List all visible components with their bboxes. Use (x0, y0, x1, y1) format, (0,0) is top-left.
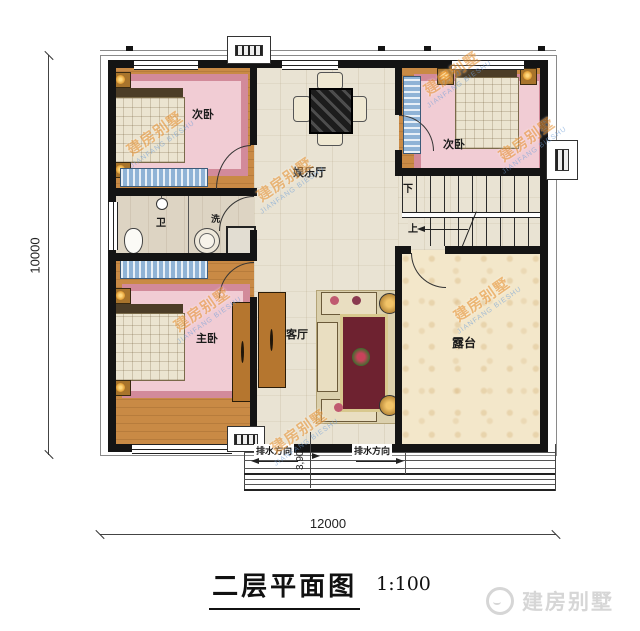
eave-line-outer (100, 50, 556, 51)
wardrobe (258, 292, 286, 388)
wall-right (540, 60, 548, 452)
label-living-room: 客厅 (286, 326, 308, 342)
lamp-icon (116, 75, 125, 84)
nightstand (437, 68, 454, 85)
dim-porch-arrow-icon (312, 453, 320, 459)
wardrobe-handle (241, 341, 244, 363)
wall-hall-bedroomTR (395, 60, 402, 115)
dim-bottom-line (100, 534, 556, 535)
window (108, 202, 118, 250)
nightstand (520, 68, 537, 85)
stair-arrow-line (424, 229, 468, 230)
dim-left-text: 10000 (28, 237, 43, 273)
window (282, 60, 338, 70)
wall-bedroomTL-bottom (108, 188, 257, 196)
roof-strip-heavy (244, 473, 556, 475)
bay-pane-icon (555, 149, 569, 171)
dim-porch-text: 3,900 (295, 445, 306, 470)
wall-bedroomTL-right (250, 60, 257, 145)
bed-headboard (113, 304, 183, 313)
lamp-icon (440, 71, 449, 80)
sofa-left (317, 322, 338, 392)
label-bedroom-top-left: 次卧 (192, 106, 214, 122)
roof-strip-line (244, 468, 556, 469)
label-bedroom-top-right: 次卧 (443, 136, 465, 152)
lamp-icon (116, 291, 125, 300)
wardrobe-handle (270, 329, 273, 351)
eave-marker (538, 46, 545, 51)
lamp-icon (523, 71, 532, 80)
label-bedroom-master: 主卧 (196, 330, 218, 346)
dim-left-line (48, 55, 49, 455)
basin-inner (199, 233, 215, 249)
wall-stairs-bottom-left (395, 246, 411, 254)
label-stairs-down: 下 (403, 180, 413, 195)
drain-arrow-left-icon (251, 458, 259, 464)
floor-plan-canvas: 次卧 次卧 主卧 娱乐厅 客厅 卫 洗 露台 下 上 排水方向 排水方向 3,9… (0, 0, 640, 631)
flower-decor-icon (352, 348, 370, 366)
label-terrace: 露台 (452, 334, 476, 351)
bath-partition (188, 196, 189, 253)
pillow-icon (330, 296, 339, 305)
page-title: 二层平面图 (209, 566, 360, 610)
roof-strip-heavy (244, 489, 556, 491)
wall-bedroomTR-bottom (395, 168, 548, 176)
bay-box-top (227, 36, 271, 64)
brand-logo: 建房别墅 (486, 586, 614, 616)
window (134, 60, 198, 70)
wall-bath-bottom (108, 253, 257, 261)
label-toilet: 卫 (156, 214, 166, 229)
roof-strip-right-edge (555, 444, 556, 491)
dim-porch-line (310, 432, 311, 488)
wall-terrace-left (395, 254, 402, 452)
eave-marker (378, 46, 385, 51)
stair-flight-upper (402, 172, 544, 212)
lamp-icon (116, 383, 125, 392)
dim-bottom-text: 12000 (100, 516, 556, 531)
label-laundry: 洗 (211, 212, 220, 225)
dim-tick (44, 51, 53, 60)
stair-arrow-head-icon (417, 226, 425, 232)
pillow-icon (334, 403, 343, 412)
drawing-scale: 1:100 (376, 573, 431, 595)
label-entertainment-hall: 娱乐厅 (293, 164, 326, 180)
game-table (309, 88, 353, 134)
roof-strip-line (244, 479, 556, 480)
bed-top-left (113, 97, 185, 163)
drain-arrow-left-line (258, 461, 298, 462)
toilet-icon (124, 228, 143, 254)
brand-logo-icon (486, 587, 514, 615)
label-drainage-right: 排水方向 (352, 444, 392, 457)
eave-marker (126, 46, 133, 51)
wall-stairs-bottom-right (445, 246, 548, 254)
window (132, 444, 232, 454)
dim-tick (44, 450, 53, 459)
window-bench (120, 260, 208, 279)
window-bench (120, 168, 208, 187)
bed-headboard (113, 88, 183, 97)
eave-marker (424, 46, 431, 51)
sofa-top (321, 292, 377, 315)
window (452, 60, 524, 70)
bay-pane-icon (235, 45, 263, 56)
stair-flight-lower (430, 216, 544, 246)
shower-icon (156, 198, 168, 210)
drain-arrow-right-line (356, 461, 396, 462)
label-drainage-left: 排水方向 (254, 444, 294, 457)
bed-master (113, 313, 185, 381)
wall-bath-right (250, 230, 257, 261)
brand-logo-text: 建房别墅 (522, 586, 614, 616)
pillow-icon (352, 296, 361, 305)
ac-box-right (546, 140, 578, 180)
drain-arrow-right-icon (396, 458, 404, 464)
roof-strip-line (244, 484, 556, 485)
